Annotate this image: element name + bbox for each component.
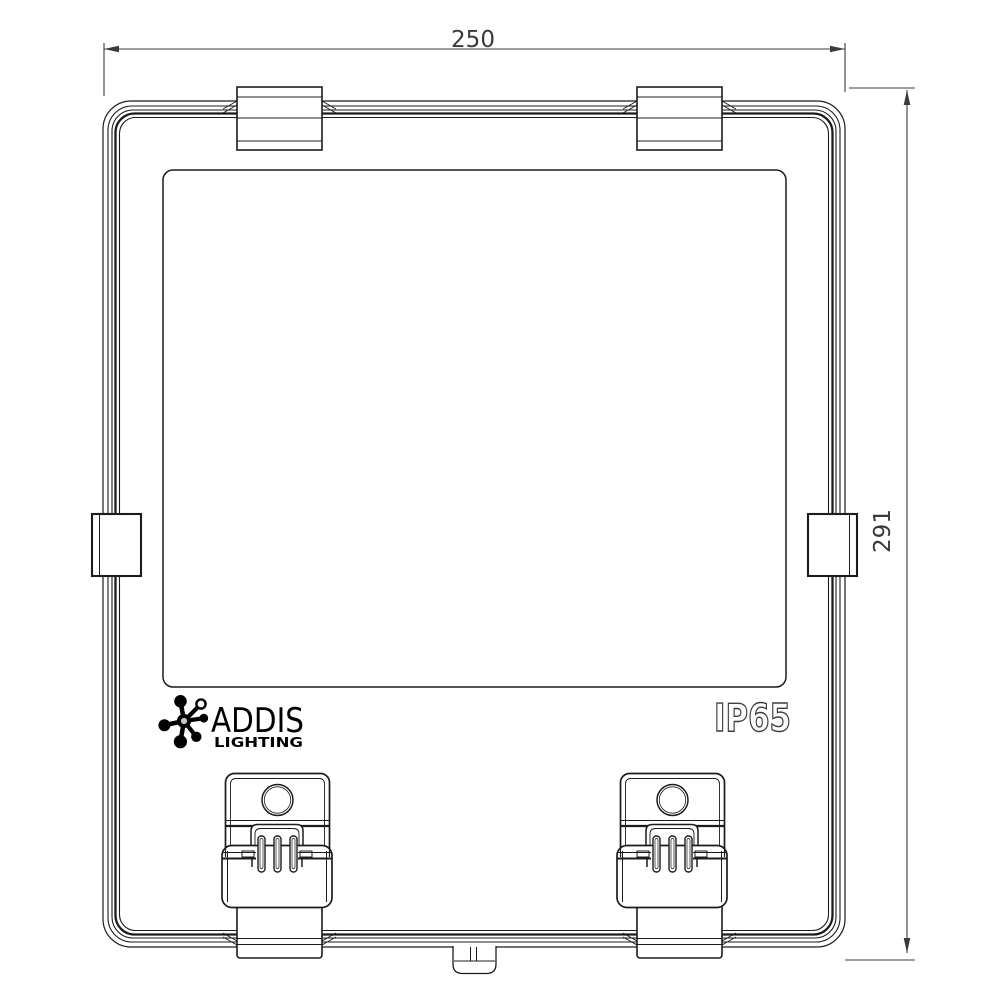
height-dimension-value: 291	[870, 509, 896, 553]
arrowhead-up-icon	[904, 90, 911, 105]
arrowhead-left-icon	[104, 46, 119, 52]
bracket-connector-pins	[258, 836, 297, 872]
drawing-root: ADDIS LIGHTING IP65	[92, 87, 857, 974]
mounting-bracket-left	[222, 774, 332, 908]
ip-rating-label: IP65	[714, 696, 791, 740]
cable-tab	[453, 946, 496, 974]
arrowhead-down-icon	[904, 938, 911, 953]
width-dimension-value: 250	[451, 27, 495, 53]
clip-top-right	[623, 87, 736, 150]
mounting-bracket-right	[617, 774, 727, 908]
floodlight-technical-drawing: 250 291	[0, 0, 1000, 1000]
clip-top-left	[223, 87, 336, 150]
dimension-width: 250	[104, 27, 845, 96]
addis-logo: ADDIS LIGHTING	[158, 695, 304, 751]
housing-outline	[103, 101, 845, 947]
clip-side-right	[808, 514, 857, 576]
technical-drawing-page: 250 291	[0, 0, 1000, 1000]
glass-panel	[163, 170, 786, 687]
arrowhead-right-icon	[830, 46, 845, 52]
brand-subtitle: LIGHTING	[214, 735, 303, 751]
clip-side-left	[92, 514, 141, 576]
addis-star-icon	[158, 695, 208, 748]
